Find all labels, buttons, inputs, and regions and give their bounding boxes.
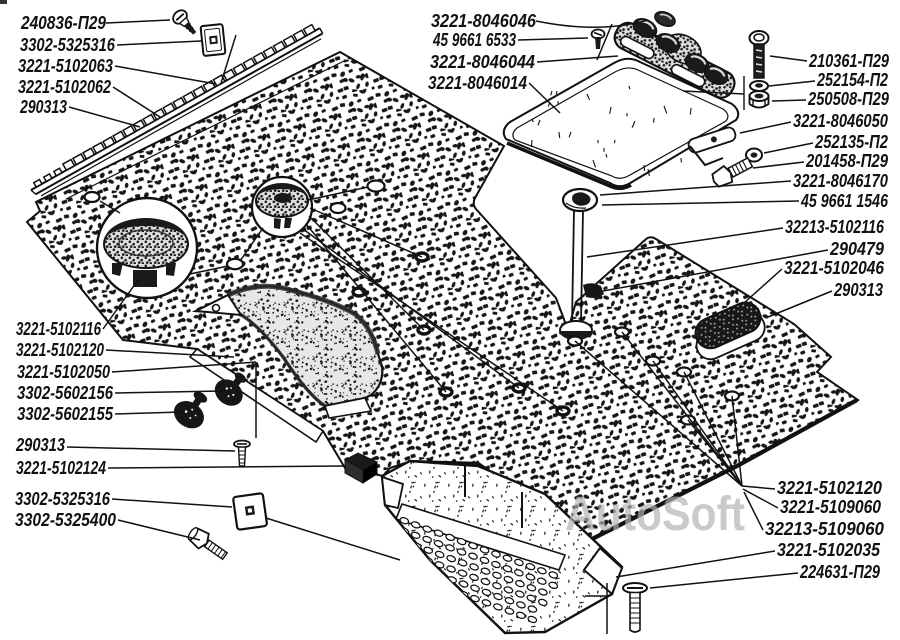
svg-text:AutoSoft: AutoSoft [565, 488, 745, 541]
svg-text:3221-5102035: 3221-5102035 [777, 540, 881, 560]
svg-text:3221-5102046: 3221-5102046 [784, 258, 885, 278]
svg-text:3221-5109060: 3221-5109060 [780, 497, 881, 517]
svg-text:3221-5102120: 3221-5102120 [777, 478, 882, 498]
svg-text:3302-5602155: 3302-5602155 [17, 404, 114, 424]
svg-text:3221-8046170: 3221-8046170 [793, 171, 888, 191]
svg-text:290479: 290479 [829, 239, 884, 259]
svg-text:3302-5325316: 3302-5325316 [20, 35, 116, 55]
svg-text:3221-5102116: 3221-5102116 [16, 319, 102, 339]
svg-text:45 9661 6533: 45 9661 6533 [432, 30, 516, 50]
svg-text:3221-5102120: 3221-5102120 [16, 340, 104, 360]
svg-text:3221-8046050: 3221-8046050 [793, 111, 888, 131]
svg-text:3302-5325400: 3302-5325400 [15, 510, 116, 530]
svg-text:3302-5325316: 3302-5325316 [15, 489, 111, 509]
svg-text:250508-П29: 250508-П29 [807, 89, 889, 109]
svg-text:224631-П29: 224631-П29 [799, 562, 880, 582]
svg-text:32213-5109060: 32213-5109060 [765, 519, 884, 539]
svg-text:240836-П29: 240836-П29 [20, 13, 106, 33]
svg-text:3221-8046014: 3221-8046014 [428, 73, 527, 93]
svg-text:252135-П2: 252135-П2 [814, 132, 888, 152]
svg-text:210361-П29: 210361-П29 [808, 51, 889, 71]
svg-text:252154-П2: 252154-П2 [816, 70, 888, 90]
svg-text:3221-5102124: 3221-5102124 [16, 458, 106, 478]
svg-text:3221-8046046: 3221-8046046 [431, 11, 537, 31]
svg-text:3302-5602156: 3302-5602156 [17, 383, 114, 403]
svg-text:290313: 290313 [19, 97, 67, 117]
svg-text:3221-5102050: 3221-5102050 [17, 362, 110, 382]
svg-text:201458-П29: 201458-П29 [805, 151, 888, 171]
svg-text:290313: 290313 [15, 435, 65, 455]
svg-text:3221-8046044: 3221-8046044 [430, 52, 535, 72]
svg-text:290313: 290313 [833, 280, 883, 300]
svg-text:3221-5102062: 3221-5102062 [18, 77, 111, 97]
svg-text:45 9661 1546: 45 9661 1546 [800, 191, 889, 211]
svg-text:32213-5102116: 32213-5102116 [785, 217, 885, 237]
svg-text:3221-5102063: 3221-5102063 [18, 56, 113, 76]
